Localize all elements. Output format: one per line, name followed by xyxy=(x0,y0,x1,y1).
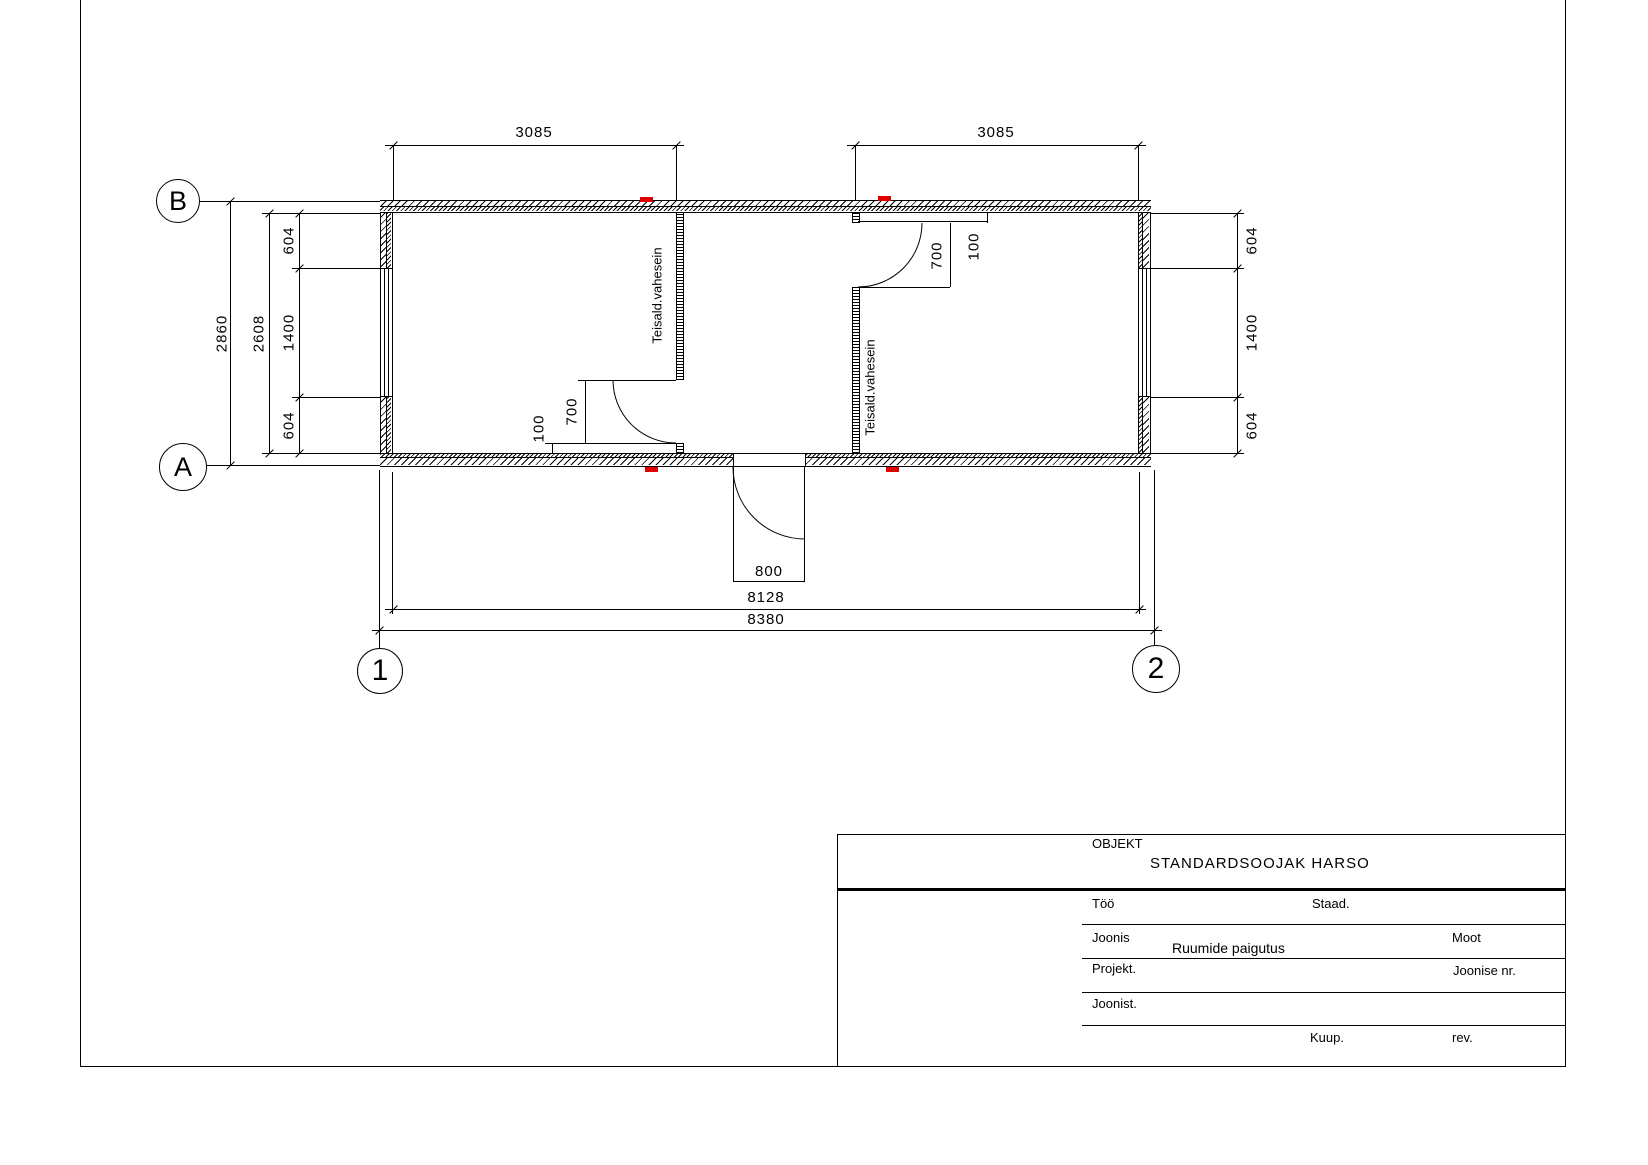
entry-door-opening xyxy=(733,453,806,467)
wall-south-left xyxy=(380,453,733,467)
dim-line-door-left-width xyxy=(585,380,586,443)
dim-ext xyxy=(392,472,393,614)
titleblock-divider-thick xyxy=(837,888,1565,891)
dim-ext xyxy=(1138,145,1139,200)
dim-text-right-top: 604 xyxy=(1244,201,1261,281)
dim-ext xyxy=(855,145,856,200)
dim-line-right-segments xyxy=(1237,213,1238,453)
frame-bottom xyxy=(80,1066,1566,1067)
titleblock-row-line xyxy=(1082,958,1565,959)
titleblock-rev-label: rev. xyxy=(1452,1030,1473,1045)
partition-left-stub xyxy=(676,443,684,453)
wall-west-lower-inner-layer xyxy=(387,397,391,453)
dim-text-overall-height: 2860 xyxy=(214,294,231,374)
dim-text-right-mid: 1400 xyxy=(1244,293,1261,373)
dim-text-left-top: 604 xyxy=(281,201,298,281)
dim-text-left-mid: 1400 xyxy=(281,293,298,373)
grid-stem-1 xyxy=(379,470,380,648)
door-right-arc xyxy=(858,223,922,287)
dim-ext xyxy=(1151,213,1244,214)
dim-ext xyxy=(292,397,380,398)
grid-bubble-b: B xyxy=(156,179,200,223)
red-mark-top-left xyxy=(640,197,653,202)
titleblock-too-label: Töö xyxy=(1092,896,1114,911)
partition-left-upper xyxy=(676,213,684,380)
titleblock-row-line xyxy=(1082,992,1565,993)
dim-line-door-right-width xyxy=(950,223,951,287)
dim-text-right-bot: 604 xyxy=(1244,386,1261,466)
partition-left-label: Teisald.vahesein xyxy=(650,241,665,351)
grid-bubble-2: 2 xyxy=(1132,645,1180,693)
dim-line-room-left xyxy=(385,145,684,146)
titleblock-joonise-nr-label: Joonise nr. xyxy=(1453,963,1516,978)
frame-right xyxy=(1565,0,1566,1066)
grid-bubble-a: A xyxy=(159,443,207,491)
drawing-sheet: B A 1 2 xyxy=(0,0,1648,1165)
titleblock-objekt-value: STANDARDSOOJAK HARSO xyxy=(1150,855,1370,872)
grid-label-1: 1 xyxy=(372,654,389,688)
dim-text-door-left-offset: 100 xyxy=(531,389,548,469)
titleblock-objekt-label: OBJEKT xyxy=(1092,836,1143,851)
red-mark-bottom-right xyxy=(886,467,899,472)
wall-east-upper xyxy=(1138,213,1151,268)
wall-north-inner-layer xyxy=(380,207,1151,211)
titleblock-joonis-label: Joonis xyxy=(1092,930,1130,945)
partition-right-label: Teisald.vahesein xyxy=(863,333,878,443)
dim-text-room-right: 3085 xyxy=(956,124,1036,141)
titleblock-kuup-label: Kuup. xyxy=(1310,1030,1344,1045)
dim-text-overall-width: 8380 xyxy=(726,611,806,628)
dim-ext xyxy=(292,268,380,269)
wall-east-lower-outer-layer xyxy=(1143,397,1149,453)
dim-line-door-left-offset xyxy=(552,443,553,453)
wall-south-right-outer-layer xyxy=(805,458,1151,465)
grid-label-2: 2 xyxy=(1148,652,1165,686)
window-east xyxy=(1138,268,1151,397)
titleblock-row-line xyxy=(1082,924,1565,925)
wall-east-upper-outer-layer xyxy=(1143,213,1149,268)
red-mark-top-right xyxy=(878,196,891,201)
wall-south-right xyxy=(805,453,1151,467)
door-left-arc xyxy=(613,380,676,443)
dim-text-inner-height: 2608 xyxy=(251,294,268,374)
red-mark-bottom-left xyxy=(645,467,658,472)
dim-text-door-right-offset: 100 xyxy=(966,207,983,287)
dim-ext xyxy=(1151,397,1244,398)
titleblock-joonis-value: Ruumide paigutus xyxy=(1172,940,1285,956)
titleblock-row-line xyxy=(1082,1025,1565,1026)
dim-text-door-left-width: 700 xyxy=(564,372,581,452)
grid-stem-2 xyxy=(1154,470,1155,645)
dim-line-inner-width xyxy=(385,609,1146,610)
titleblock-joonist-label: Joonist. xyxy=(1092,996,1137,1011)
dim-line-door-right-offset xyxy=(987,213,988,223)
wall-south-left-outer-layer xyxy=(380,458,733,465)
wall-west-lower xyxy=(380,397,393,453)
dim-line-left-segments xyxy=(299,213,300,453)
wall-west-upper-inner-layer xyxy=(387,213,391,268)
door-swing-arcs xyxy=(0,0,1648,1165)
dim-ext xyxy=(393,145,394,200)
partition-right-lower xyxy=(852,287,860,453)
grid-label-b: B xyxy=(169,186,187,217)
titleblock-projekt-label: Projekt. xyxy=(1092,961,1136,976)
titleblock-top-edge xyxy=(837,834,1565,835)
wall-east-lower xyxy=(1138,397,1151,453)
titleblock-moot-label: Moot xyxy=(1452,930,1481,945)
dim-line-overall-width xyxy=(372,630,1162,631)
dim-text-room-left: 3085 xyxy=(494,124,574,141)
wall-west-upper xyxy=(380,213,393,268)
dim-text-entry-door: 800 xyxy=(739,563,799,580)
dim-ext xyxy=(1139,472,1140,614)
dim-line-inner-height xyxy=(269,213,270,453)
grid-label-a: A xyxy=(174,452,192,483)
dim-ext xyxy=(1151,453,1244,454)
window-west xyxy=(380,268,393,397)
dim-ext xyxy=(1151,268,1244,269)
dim-text-inner-width: 8128 xyxy=(726,589,806,606)
frame-left xyxy=(80,0,81,1066)
dim-text-door-right-width: 700 xyxy=(929,216,946,296)
titleblock-staad-label: Staad. xyxy=(1312,896,1350,911)
titleblock-left-edge xyxy=(837,834,838,1066)
door-left-leaf xyxy=(578,380,676,381)
dim-ext xyxy=(676,145,677,200)
grid-bubble-1: 1 xyxy=(357,648,403,694)
dim-line-room-right xyxy=(847,145,1146,146)
wall-north xyxy=(380,200,1151,213)
dim-text-left-bot: 604 xyxy=(281,386,298,466)
